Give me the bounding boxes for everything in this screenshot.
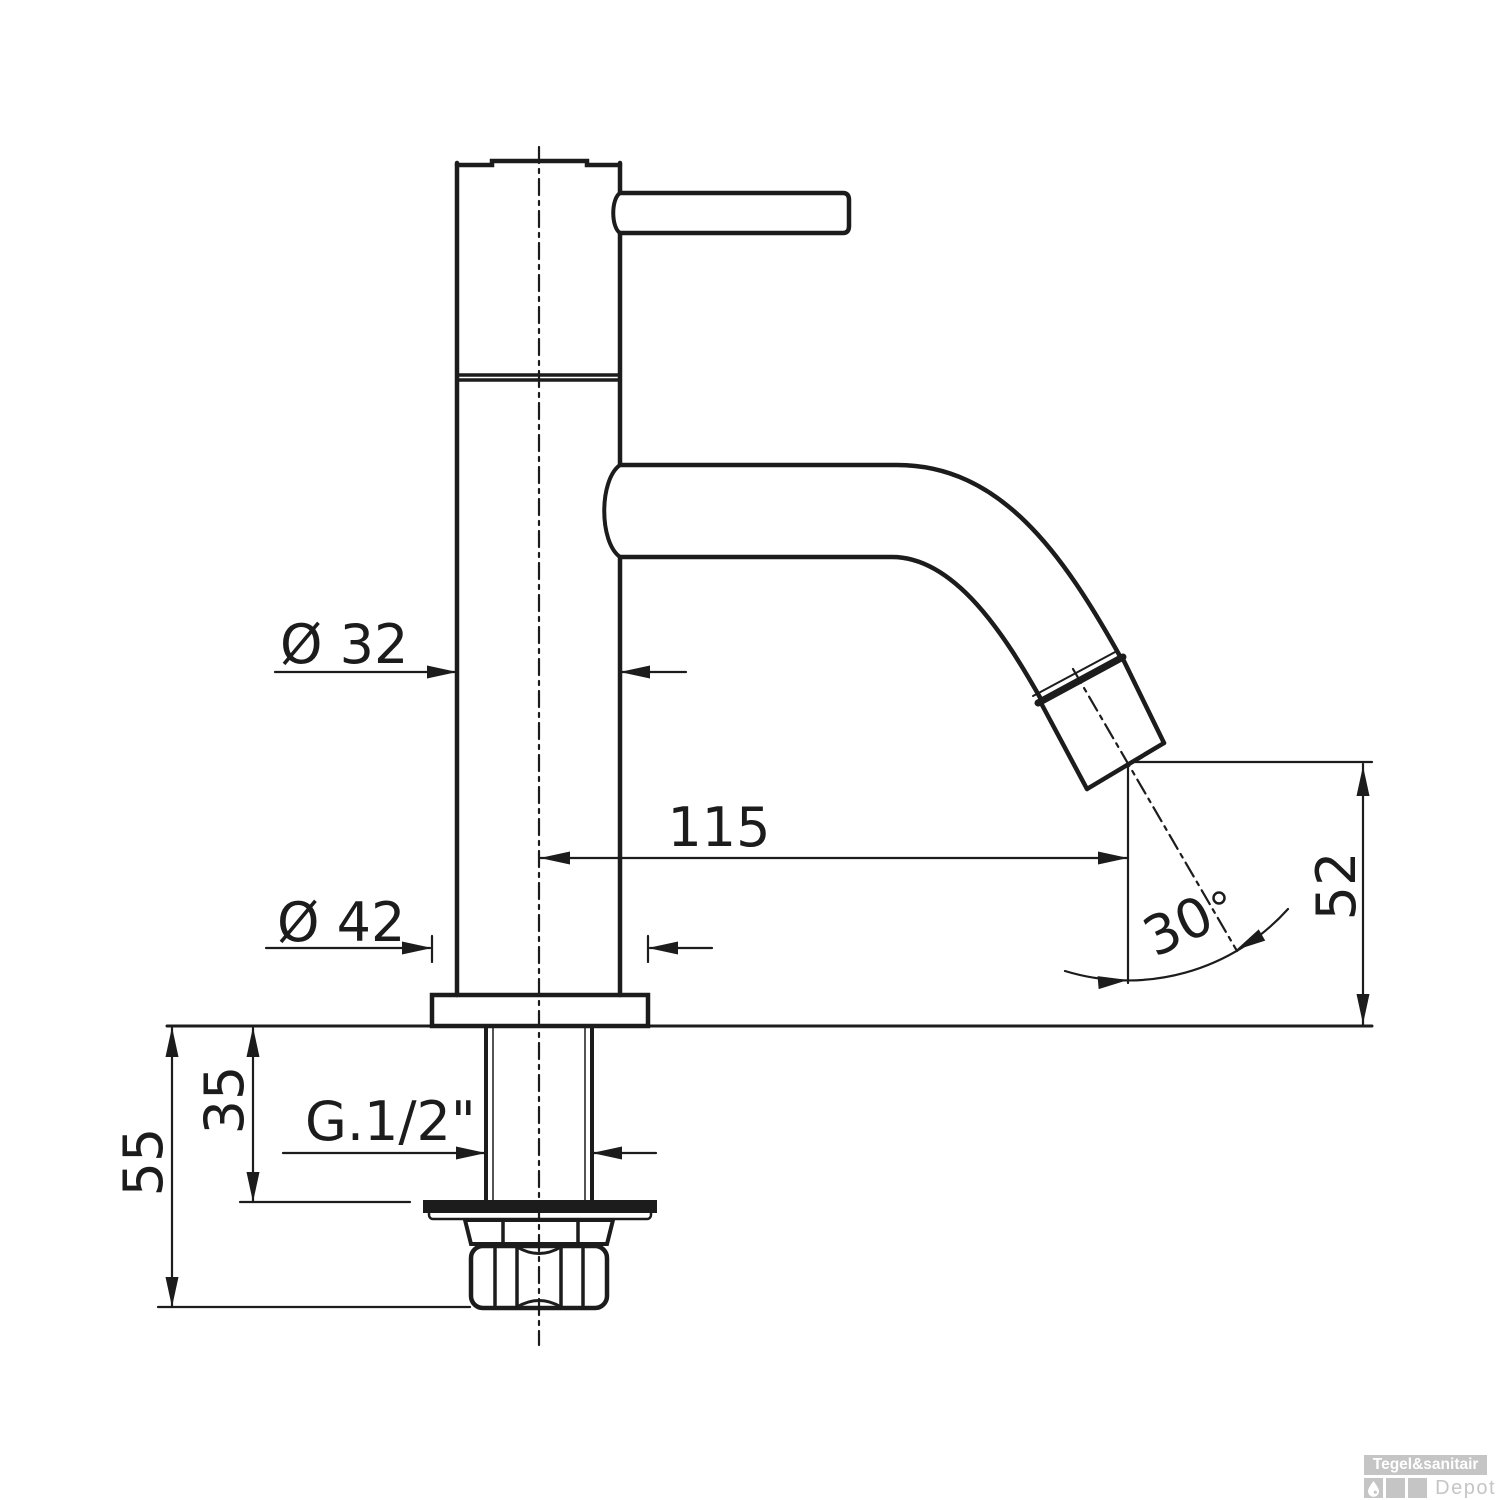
dimension-lines <box>158 672 1372 1307</box>
dim-base-diameter-label: Ø 42 <box>277 891 405 954</box>
faucet-dimensional-drawing: Ø 32 Ø 42 115 52 30 35 55 G.1/2" <box>0 0 1500 1500</box>
watermark: Tegel&sanitair Depot <box>1364 1455 1496 1498</box>
dim-spout-height-label: 52 <box>1305 852 1368 921</box>
watermark-row: Depot <box>1364 1478 1496 1498</box>
watermark-brand: Tegel&sanitair <box>1364 1455 1487 1475</box>
spout-bottom-edge <box>620 557 1042 701</box>
dim-body-diameter-label: Ø 32 <box>280 613 408 676</box>
dim-shank-visible-label: 35 <box>193 1066 256 1135</box>
water-droplet-icon <box>1364 1478 1383 1498</box>
spout-top-edge <box>620 465 1121 658</box>
handle-lever <box>620 193 849 233</box>
watermark-tile-2 <box>1386 1478 1405 1498</box>
degree-symbol <box>1214 893 1225 904</box>
dim-spout-angle-label: 30 <box>1134 883 1223 969</box>
spout <box>620 465 1121 701</box>
technical-drawing-page: Ø 32 Ø 42 115 52 30 35 55 G.1/2" Tegel&s… <box>0 0 1500 1500</box>
watermark-droplet-tile <box>1364 1478 1383 1498</box>
nut-chamfer-facets <box>503 1220 578 1244</box>
handle-root-arc <box>613 193 620 233</box>
centerlines <box>539 147 1237 1345</box>
aerator-right-wall <box>1122 657 1164 743</box>
aerator-tip-face <box>1087 743 1164 789</box>
watermark-sub-brand: Depot <box>1435 1478 1496 1498</box>
dim-thread-label: G.1/2" <box>305 1090 476 1153</box>
spout-aerator <box>1033 651 1164 789</box>
watermark-tile-3 <box>1408 1478 1427 1498</box>
dimension-labels: Ø 32 Ø 42 115 52 30 35 55 G.1/2" <box>112 613 1368 1196</box>
aerator-left-wall <box>1041 703 1087 789</box>
spout-root-arc <box>604 465 620 557</box>
dim-shank-total-label: 55 <box>112 1128 175 1197</box>
dim-spout-reach-label: 115 <box>667 796 770 859</box>
